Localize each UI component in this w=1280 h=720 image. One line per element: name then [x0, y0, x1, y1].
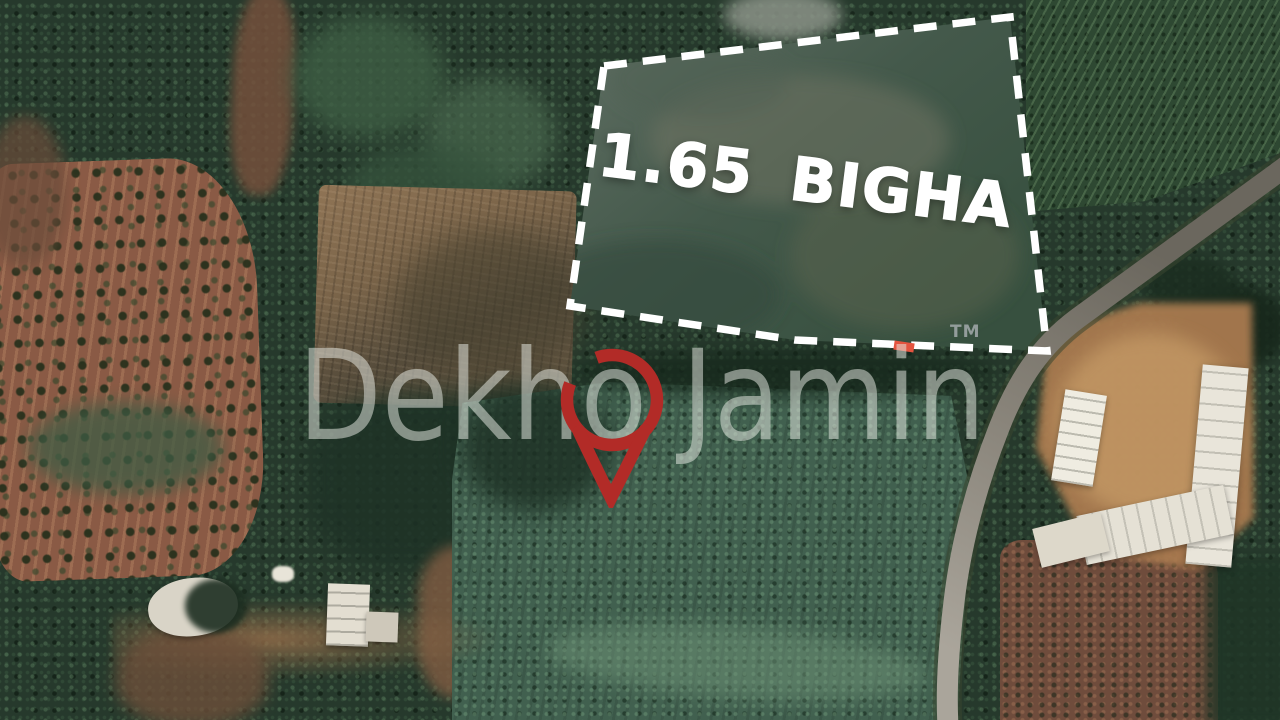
satellite-map: Dekho Jamin TM 1.65 BIGHA	[0, 0, 1280, 720]
white-speck-structure	[272, 566, 294, 582]
small-shed	[365, 611, 398, 642]
trademark-badge: TM	[950, 322, 981, 342]
white-roof-building	[326, 583, 370, 646]
boundary-red-dash	[894, 345, 914, 348]
location-pin-icon	[550, 338, 674, 508]
palm-tree-blob	[185, 579, 247, 633]
